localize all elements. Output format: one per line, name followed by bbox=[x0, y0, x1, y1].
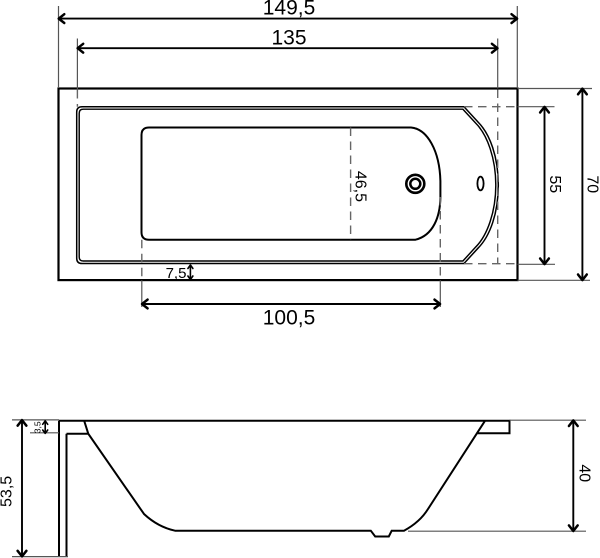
svg-text:46,5: 46,5 bbox=[352, 171, 369, 202]
svg-text:100,5: 100,5 bbox=[263, 307, 316, 330]
svg-text:7,5: 7,5 bbox=[166, 265, 187, 282]
svg-text:55: 55 bbox=[546, 175, 563, 193]
svg-text:53,5: 53,5 bbox=[0, 476, 16, 507]
svg-text:3,5: 3,5 bbox=[32, 421, 42, 433]
svg-text:40: 40 bbox=[576, 464, 593, 482]
svg-text:70: 70 bbox=[584, 175, 600, 193]
svg-text:135: 135 bbox=[271, 27, 306, 50]
svg-text:149,5: 149,5 bbox=[263, 0, 316, 19]
